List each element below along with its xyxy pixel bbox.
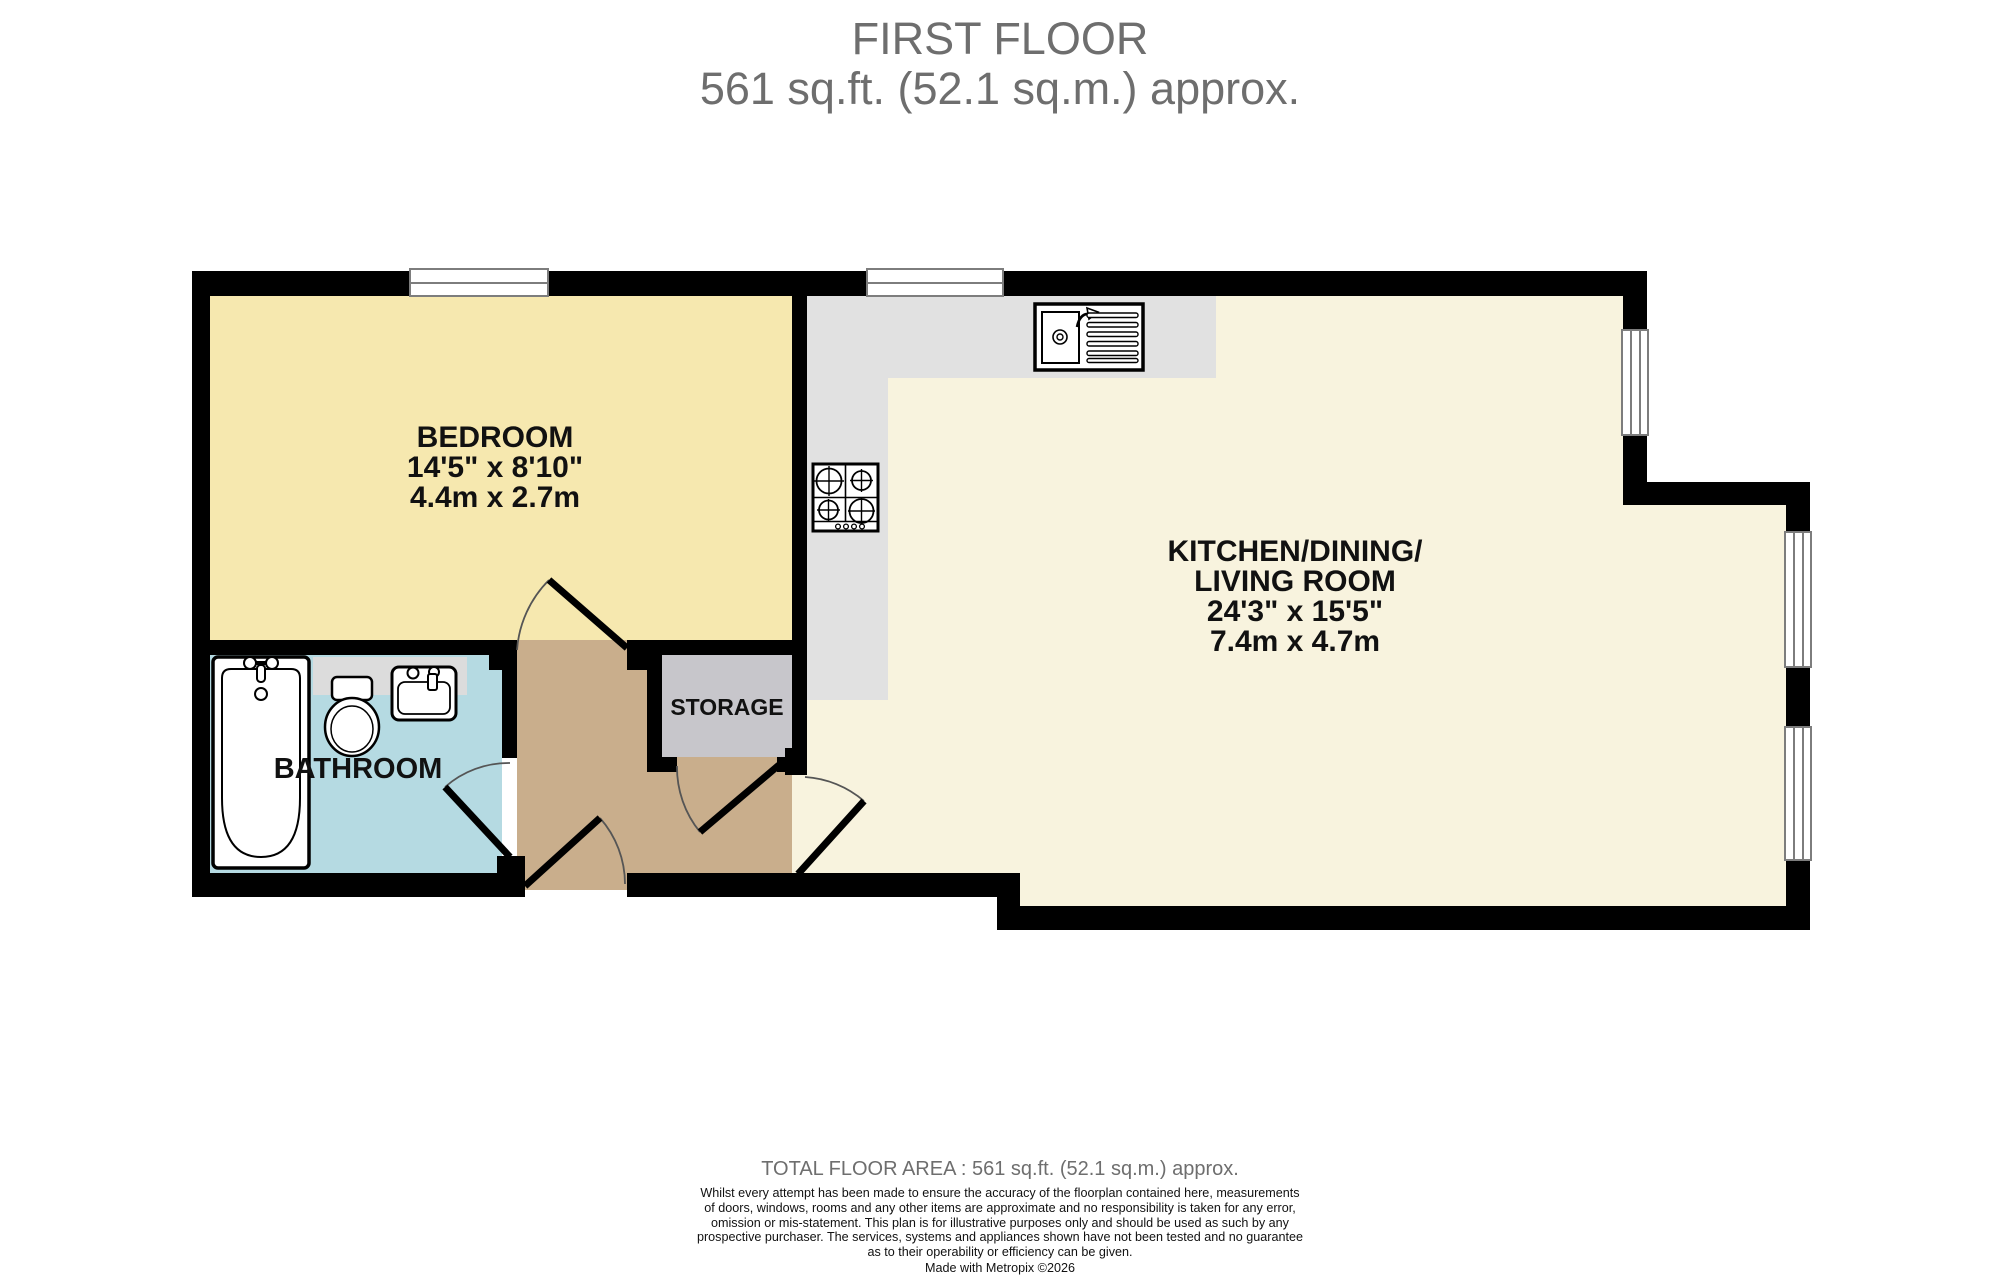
metropix-credit: Made with Metropix ©2026: [0, 1261, 2000, 1275]
floor-area: 561 sq.ft. (52.1 sq.m.) approx.: [0, 64, 2000, 114]
disclaimer-text: Whilst every attempt has been made to en…: [0, 1186, 2000, 1260]
kitchen-dim-imperial: 24'3" x 15'5": [1145, 597, 1445, 627]
wall-bottom-right: [997, 906, 1810, 930]
kitchen-label: KITCHEN/DINING/ LIVING ROOM 24'3" x 15'5…: [1145, 537, 1445, 657]
window-bedroom-top: [410, 269, 548, 296]
kitchen-sink-icon: [1035, 304, 1143, 370]
basin-icon: [392, 667, 456, 720]
floorplan-page: FIRST FLOOR 561 sq.ft. (52.1 sq.m.) appr…: [0, 0, 2000, 1279]
kitchen-name-line1: KITCHEN/DINING/: [1145, 537, 1445, 567]
total-floor-area: TOTAL FLOOR AREA : 561 sq.ft. (52.1 sq.m…: [0, 1158, 2000, 1181]
floor-name: FIRST FLOOR: [0, 14, 2000, 64]
bedroom-dim-metric: 4.4m x 2.7m: [345, 483, 645, 513]
wall-bedroom-door-post-left: [489, 640, 517, 670]
wall-left: [192, 271, 210, 897]
bathroom-label: BATHROOM: [238, 754, 478, 784]
bedroom-name: BEDROOM: [345, 423, 645, 453]
kitchen-name-line2: LIVING ROOM: [1145, 567, 1445, 597]
wall-storage-stub-left: [647, 757, 677, 772]
wall-kitchen-door-post: [785, 748, 807, 775]
wall-bedroom-door-post-right: [627, 640, 655, 670]
wall-entry-door-post: [497, 856, 525, 897]
kitchen-dim-metric: 7.4m x 4.7m: [1145, 627, 1445, 657]
window-kitchen-right-1: [1785, 532, 1811, 667]
plan-title: FIRST FLOOR 561 sq.ft. (52.1 sq.m.) appr…: [0, 14, 2000, 114]
floor-plan-drawing: [0, 0, 2000, 1279]
wall-jog: [1623, 482, 1810, 505]
wall-bedroom-bottom-a: [210, 640, 517, 655]
window-kitchen-upper-right: [1622, 330, 1648, 435]
floors: [210, 296, 1786, 906]
hallway-door-patch: [517, 640, 627, 655]
bedroom-dim-imperial: 14'5" x 8'10": [345, 453, 645, 483]
toilet-icon: [325, 677, 379, 756]
window-kitchen-right-2: [1785, 727, 1811, 860]
hob-icon: [813, 464, 878, 531]
storage-label: STORAGE: [647, 695, 807, 719]
bedroom-label: BEDROOM 14'5" x 8'10" 4.4m x 2.7m: [345, 423, 645, 513]
wall-bathroom-right: [502, 655, 517, 758]
wall-bottom-left-a: [192, 873, 525, 897]
window-kitchen-top: [867, 269, 1003, 296]
wall-bottom-left-b: [627, 873, 1020, 897]
